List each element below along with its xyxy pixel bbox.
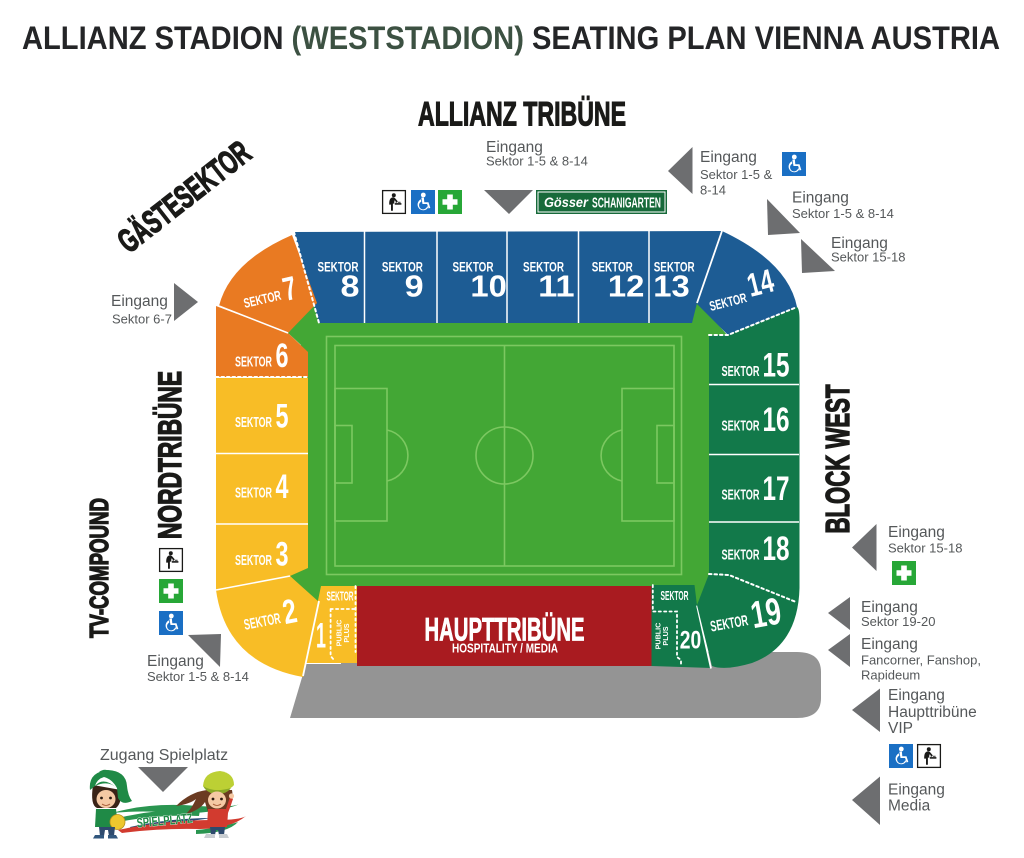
svg-text:Haupttribüne: Haupttribüne	[888, 704, 977, 721]
svg-text:9: 9	[405, 269, 424, 304]
svg-text:3: 3	[276, 536, 289, 574]
svg-text:16: 16	[763, 401, 790, 439]
svg-text:Sektor 6-7: Sektor 6-7	[112, 312, 172, 327]
svg-text:8: 8	[341, 269, 360, 304]
svg-text:SEKTOR: SEKTOR	[722, 487, 760, 504]
svg-text:8-14: 8-14	[700, 183, 726, 198]
svg-text:SEKTOR: SEKTOR	[661, 589, 689, 603]
svg-text:Sektor 1-5 &: Sektor 1-5 &	[700, 167, 773, 182]
svg-text:VIP: VIP	[888, 720, 913, 737]
svg-text:Sektor 15-18: Sektor 15-18	[831, 249, 905, 264]
svg-text:HOSPITALITY / MEDIA: HOSPITALITY / MEDIA	[452, 641, 558, 656]
svg-text:Gösser: Gösser	[544, 195, 589, 210]
svg-text:Sektor 1-5 & 8-14: Sektor 1-5 & 8-14	[792, 206, 894, 221]
svg-text:13: 13	[653, 269, 690, 304]
svg-text:15: 15	[763, 347, 790, 385]
svg-text:Media: Media	[888, 798, 931, 815]
svg-text:Eingang: Eingang	[792, 190, 849, 207]
svg-text:20: 20	[680, 627, 702, 655]
svg-text:1: 1	[316, 617, 326, 656]
svg-text:Zugang Spielplatz: Zugang Spielplatz	[100, 747, 228, 764]
svg-text:12: 12	[608, 269, 645, 304]
svg-text:NORDTRIBÜNE: NORDTRIBÜNE	[152, 371, 188, 539]
svg-text:SEKTOR: SEKTOR	[327, 589, 354, 604]
svg-text:TV-COMPOUND: TV-COMPOUND	[84, 498, 114, 638]
svg-text:Rapideum: Rapideum	[861, 668, 920, 683]
svg-text:Sektor 19-20: Sektor 19-20	[861, 614, 935, 629]
svg-text:SEKTOR: SEKTOR	[235, 552, 272, 569]
svg-text:6: 6	[276, 337, 289, 375]
svg-text:Sektor 1-5 & 8-14: Sektor 1-5 & 8-14	[486, 154, 588, 169]
svg-text:BLOCK WEST: BLOCK WEST	[819, 385, 856, 534]
svg-text:SEKTOR: SEKTOR	[235, 354, 272, 371]
svg-text:10: 10	[470, 269, 507, 304]
svg-text:4: 4	[276, 468, 289, 506]
svg-text:ALLIANZ TRIBÜNE: ALLIANZ TRIBÜNE	[418, 96, 626, 134]
svg-text:5: 5	[276, 398, 289, 436]
svg-text:Eingang: Eingang	[147, 653, 204, 670]
svg-text:Eingang: Eingang	[888, 524, 945, 541]
svg-text:18: 18	[763, 530, 790, 568]
svg-text:Sektor 15-18: Sektor 15-18	[888, 541, 962, 556]
svg-text:Fancorner, Fanshop,: Fancorner, Fanshop,	[861, 652, 981, 667]
svg-text:17: 17	[763, 470, 790, 508]
svg-text:Eingang: Eingang	[888, 687, 945, 704]
svg-text:Eingang: Eingang	[700, 149, 757, 166]
svg-text:SEKTOR: SEKTOR	[722, 418, 760, 435]
svg-text:11: 11	[538, 269, 575, 304]
svg-text:PUBLICPLUS: PUBLICPLUS	[334, 620, 351, 647]
svg-text:Sektor 1-5 & 8-14: Sektor 1-5 & 8-14	[147, 669, 249, 684]
svg-text:ALLIANZ STADION (WESTSTADION): ALLIANZ STADION (WESTSTADION) SEATING PL…	[22, 20, 1000, 56]
svg-text:PUBLICPLUS: PUBLICPLUS	[653, 623, 670, 650]
svg-text:SEKTOR: SEKTOR	[235, 485, 272, 502]
svg-text:SEKTOR: SEKTOR	[722, 547, 760, 564]
svg-text:SEKTOR: SEKTOR	[235, 414, 272, 431]
svg-text:SEKTOR: SEKTOR	[722, 363, 760, 380]
svg-text:SCHANIGARTEN: SCHANIGARTEN	[592, 196, 661, 212]
svg-text:Eingang: Eingang	[111, 293, 168, 310]
svg-text:Eingang: Eingang	[888, 782, 945, 799]
svg-text:Eingang: Eingang	[861, 636, 918, 653]
